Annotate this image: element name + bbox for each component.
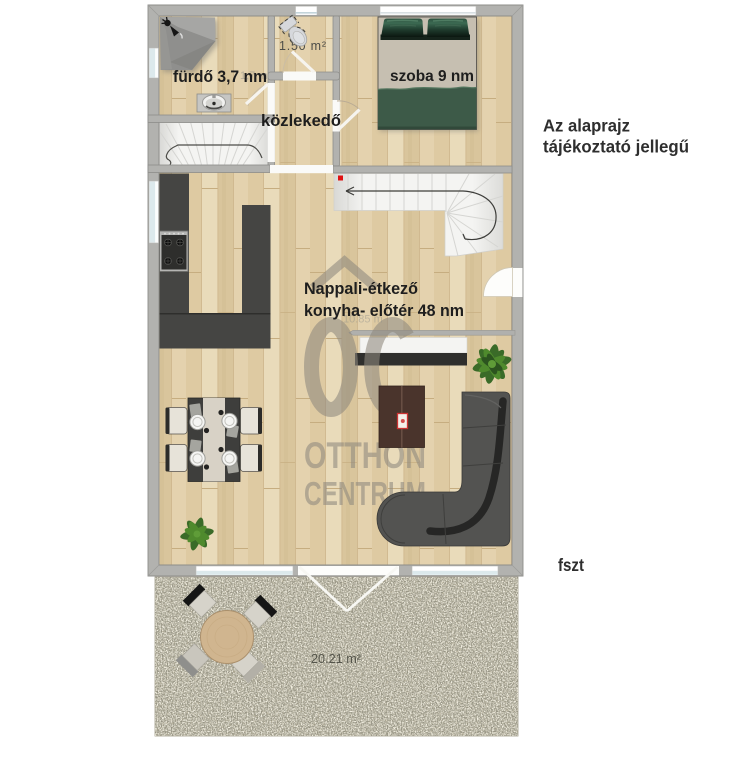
svg-text:közlekedő: közlekedő — [261, 111, 341, 130]
svg-text:fürdő 3,7 nm: fürdő 3,7 nm — [173, 67, 267, 86]
svg-text:tájékoztató jellegű: tájékoztató jellegű — [543, 137, 689, 157]
svg-text:Az alaprajz: Az alaprajz — [543, 116, 630, 136]
svg-text:20.21 m²: 20.21 m² — [311, 651, 362, 666]
svg-text:szoba 9 nm: szoba 9 nm — [390, 68, 474, 85]
svg-text:konyha- előtér 48 nm: konyha- előtér 48 nm — [304, 302, 464, 320]
svg-text:fszt: fszt — [558, 555, 584, 575]
svg-text:Nappali-étkező: Nappali-étkező — [304, 280, 418, 298]
